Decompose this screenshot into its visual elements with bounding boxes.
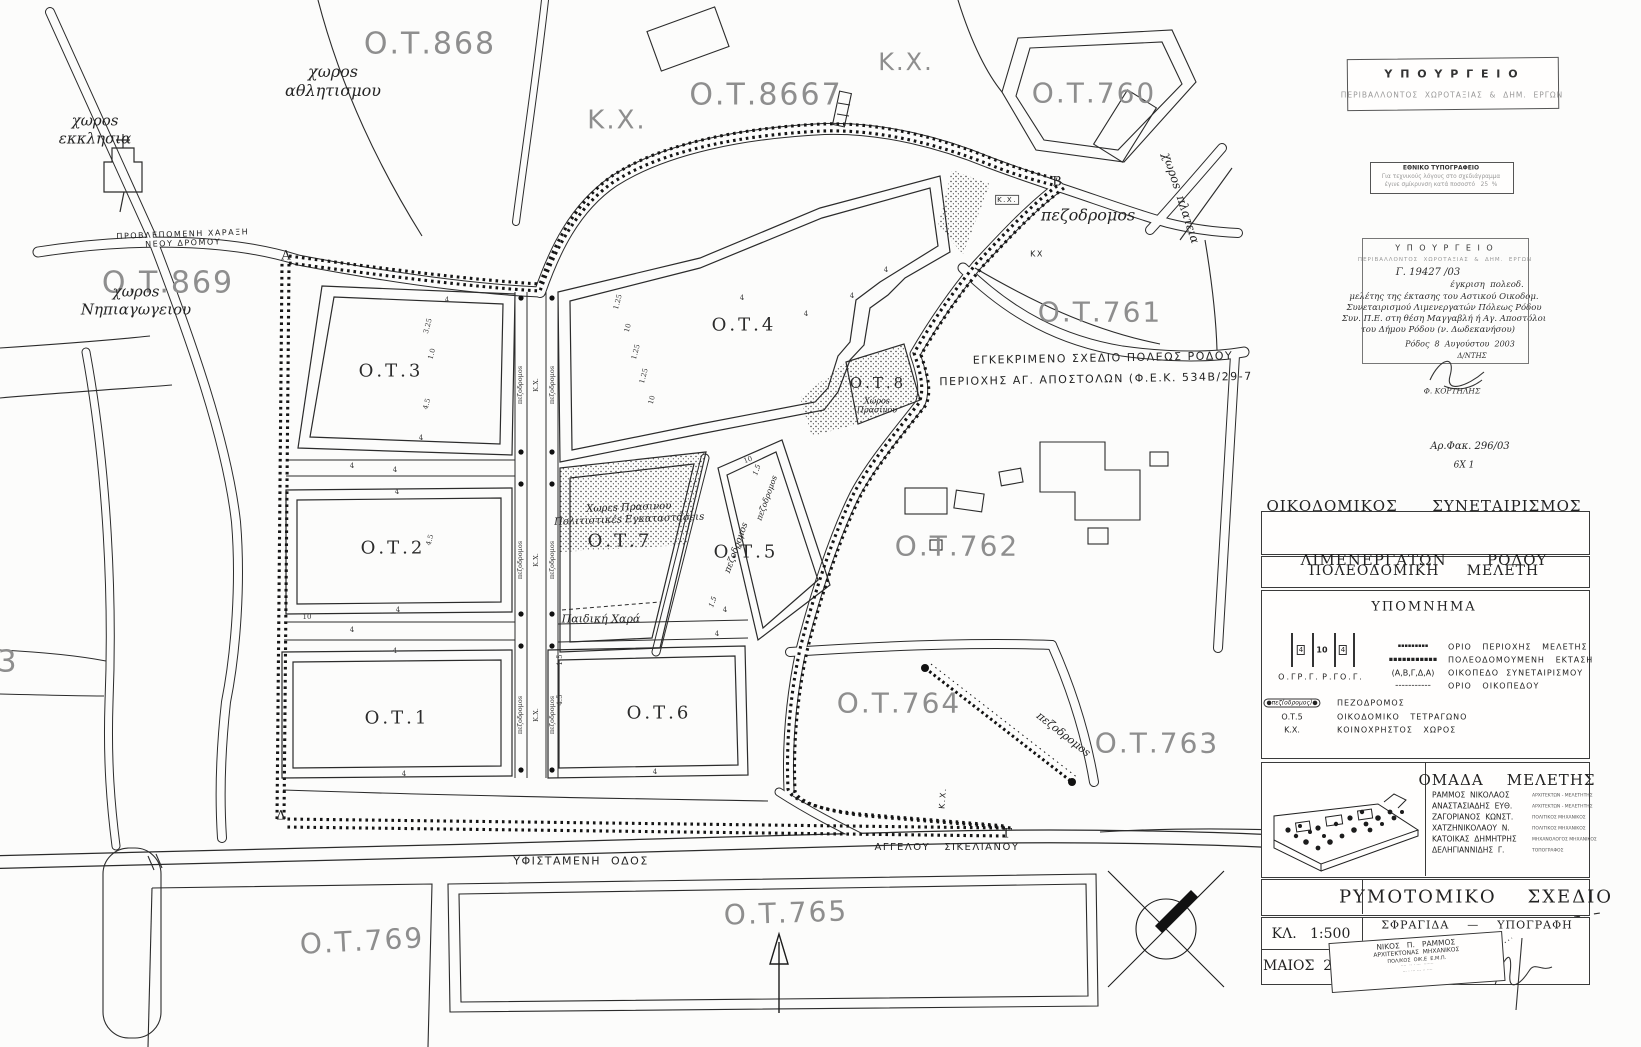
dimension-value: 4	[350, 462, 354, 470]
approval-stamp-box	[1362, 238, 1529, 364]
ot-5: Ο.Τ.5	[714, 541, 779, 562]
dimension-value: 4	[396, 606, 400, 614]
section-number-1: 4	[1297, 645, 1305, 655]
ministry-stamp-line2: ΠΕΡΙΒΑΛΛΟΝΤΟΣ ΧΩΡΟΤΑΞΙΑΣ & ΔΗΜ. ΕΡΓΩΝ	[1341, 91, 1564, 100]
team-member-name: ΖΑΓΟΡΙΑΝΟΣ ΚΩΝΣΤ.	[1432, 814, 1513, 823]
team-member-name: ΡΑΜΜΟΣ ΝΙΚΟΛΑΟΣ	[1432, 792, 1510, 801]
kx-top-left: Κ.Χ.	[587, 106, 646, 137]
vertex-g: Γ	[1003, 826, 1012, 841]
ot-761: Ο.Τ.761	[1038, 295, 1162, 328]
ministry-stamp-line1: Υ Π Ο Υ Ρ Γ Ε Ι Ο	[1384, 68, 1519, 81]
legend-item-3-symbol: -----------	[1395, 681, 1431, 692]
kx-top-right: Κ.Χ.	[878, 48, 933, 76]
dimension-value: 1.5	[556, 654, 564, 665]
section-number-3: 4	[1339, 645, 1347, 655]
ot-760: Ο.Τ.760	[1032, 76, 1156, 109]
legend-item2-0-symbol: ●πεζ(οδρομος)●	[1263, 698, 1320, 707]
north-arrow-icon	[770, 934, 788, 1013]
legend-item2-1-symbol: Ο.Τ.5	[1281, 712, 1302, 721]
file-number: Αρ.Φακ. 296/03	[1430, 441, 1509, 453]
legend-item-2-label: ΟΙΚΟΠΕΔΟ ΣΥΝΕΤΑΙΡΙΣΜΟΥ	[1448, 668, 1583, 677]
dimension-value: 4	[715, 630, 719, 638]
approval-stamp-line-10: Φ. ΚΟΡΤΗΛΗΣ	[1424, 388, 1481, 397]
ot-867: Ο.Τ.8667	[689, 77, 842, 112]
scanned-plan-page: { "map": { "outer_labels": [ {"id":"ot-8…	[0, 0, 1641, 1047]
kx-near-b1: Κ.Χ.	[995, 195, 1019, 205]
team-member-name: ΧΑΤΖΗΝΙΚΟΛΑΟΥ Ν.	[1432, 825, 1510, 834]
strip-label: πεζοδρομοs	[517, 366, 525, 404]
site-model-sketch	[1266, 772, 1426, 872]
ot-4: Ο.Τ.4	[712, 314, 777, 335]
legend-item2-1-label: ΟΙΚΟΔΟΜΙΚΟ ΤΕΤΡΑΓΩΝΟ	[1337, 712, 1467, 721]
section-bar-2	[1312, 633, 1314, 667]
area-sports: χωροs αθλητισμου	[285, 63, 381, 101]
legend-item-0-label: ΟΡΙΟ ΠΕΡΙΟΧΗΣ ΜΕΛΕΤΗΣ	[1448, 642, 1588, 651]
legend-item2-2-symbol: Κ.Χ.	[1284, 725, 1300, 734]
dimension-value: 4	[350, 626, 354, 634]
printing-stamp-body2: έγινε σμίκρυνση κατά ποσοστό 25 %	[1385, 182, 1497, 188]
section-label-left: Ο.ΓΡ.Γ.	[1278, 673, 1320, 682]
ot-6: Ο.Τ.6	[627, 702, 692, 723]
ot-764: Ο.Τ.764	[837, 686, 961, 719]
ot7-playground: Παιδική Χαρά	[562, 614, 641, 627]
dimension-value: 10	[303, 613, 312, 621]
dimension-value: 4	[445, 296, 449, 304]
strip-label: πεζοδρομοs	[549, 541, 557, 579]
ot-868: Ο.Τ.868	[364, 26, 496, 61]
team-member-role: ΑΡΧΙΤΕΚΤΩΝ - ΜΕΛΕΤΗΤΗΣ	[1532, 793, 1593, 798]
dimension-value: 4	[419, 434, 423, 442]
legend-item-1-symbol: ▪▪▪▪▪▪▪▪▪▪▪	[1389, 656, 1437, 664]
printing-stamp-title: ΕΘΝΙΚΟ ΤΥΠΟΓΡΑΦΕΙΟ	[1403, 165, 1479, 172]
study-title: ΠΟΛΕΟΔΟΜΙΚΗ ΜΕΛΕΤΗ	[1309, 563, 1539, 579]
ot-left-3: 3	[0, 644, 19, 679]
legend-title: ΥΠΟΜΝΗΜΑ	[1371, 600, 1476, 615]
team-member-role: ΠΟΛΙΤΙΚΟΣ ΜΗΧΑΝΙΚΟΣ	[1532, 815, 1586, 820]
dimension-value: 4	[393, 647, 397, 655]
team-member-role: ΤΟΠΟΓΡΑΦΟΣ	[1532, 848, 1563, 853]
team-member-name: ΑΝΑΣΤΑΣΙΑΔΗΣ ΕΥΘ.	[1432, 803, 1512, 812]
dimension-value: 4.5	[556, 694, 564, 705]
vertex-d: Δ	[276, 808, 285, 823]
strip-label: Κ.Χ.	[533, 378, 541, 392]
ot-762: Ο.Τ.762	[895, 529, 1019, 562]
street-yfistameni: ΥΦΙΣΤΑΜΕΝΗ ΟΔΟΣ	[513, 856, 649, 869]
dimension-value: 4	[804, 310, 808, 318]
legend-item2-0-label: ΠΕΖΟΔΡΟΜΟΣ	[1337, 698, 1405, 707]
printing-stamp-body1: Για τεχνικούς λόγους στο σχεδιάγραμμα	[1382, 174, 1500, 180]
area-church: χωροs εκκλησια	[59, 112, 131, 147]
ot-7: Ο.Τ.7	[588, 530, 653, 551]
dimension-value: 4	[393, 466, 397, 474]
section-bar-1	[1291, 633, 1293, 667]
dimension-value: 4	[723, 606, 727, 614]
strip-label: Κ.Χ.	[533, 708, 541, 722]
street-sikelianou: ΑΓΓΕΛΟΥ ΣΙΚΕΛΙΑΝΟΥ	[875, 842, 1020, 854]
team-member-role: ΑΡΧΙΤΕΚΤΩΝ - ΜΕΛΕΤΗΤΗΣ	[1532, 804, 1593, 809]
plan-title: ΡΥΜΟΤΟΜΙΚΟ ΣΧΕΔΙΟ	[1339, 887, 1613, 908]
section-label-right: Ρ.ΓΟ.Γ.	[1322, 673, 1364, 682]
team-member-name: ΔΕΛΗΓΙΑΝΝΙΔΗΣ Γ.	[1432, 847, 1504, 856]
ot-3: Ο.Τ.3	[359, 360, 424, 381]
ot-763: Ο.Τ.763	[1095, 726, 1219, 759]
strip-label: πεζοδρομοs	[549, 366, 557, 404]
section-bar-3	[1334, 633, 1336, 667]
team-member-name: ΚΑΤΟΙΚΑΣ ΔΗΜΗΤΡΗΣ	[1432, 836, 1517, 845]
dimension-value: 4	[395, 488, 399, 496]
area-kindergarten: χωροs Νηπιαγωγειου	[81, 283, 191, 318]
vertex-b: Β	[1052, 174, 1062, 189]
dimension-value: 4	[884, 266, 888, 274]
ministry-stamp-box	[1347, 57, 1560, 111]
team-member-role: ΜΗΧΑΝΟΛΟΓΟΣ ΜΗΧΑΝΙΚΟΣ	[1532, 837, 1597, 842]
team-title: ΟΜΑΔΑ ΜΕΛΕΤΗΣ	[1418, 771, 1595, 789]
scale-value: ΚΛ. 1:500	[1272, 926, 1351, 942]
ot-1: Ο.Τ.1	[365, 707, 430, 728]
strip-label: Κ.Χ.	[533, 553, 541, 567]
strip-label: πεζοδρομοs	[517, 696, 525, 734]
section-bar-4	[1353, 633, 1355, 667]
coop-title-line1: ΟΙΚΟΔΟΜΙΚΟΣ ΣΥΝΕΤΑΙΡΙΣΜΟΣ	[1266, 497, 1581, 515]
ot-769: Ο.Τ.769	[299, 921, 425, 960]
dimension-value: 4	[740, 294, 744, 302]
ot-2: Ο.Τ.2	[361, 537, 426, 558]
pedestrian-ne: πεζοδρομοs	[1041, 207, 1135, 226]
vertex-a: Α	[281, 248, 290, 263]
strip-label: πεζοδρομοs	[517, 541, 525, 579]
legend-item-1-label: ΠΟΛΕΟΔΟΜΟΥΜΕΝΗ ΕΚΤΑΣΗ	[1448, 655, 1593, 664]
ot8-use: Χώροs Πρασίνου	[857, 397, 897, 416]
stamp-signature-header: ΣΦΡΑΓΙΔΑ — ΥΠΟΓΡΑΦΗ	[1381, 919, 1572, 932]
legend-item-0-symbol: ▪▪▪▪▪▪▪▪▪	[1398, 644, 1429, 650]
dimension-value: 4	[402, 770, 406, 778]
legend-item-3-label: ΟΡΙΟ ΟΙΚΟΠΕΔΟΥ	[1448, 681, 1539, 690]
legend-item2-2-label: ΚΟΙΝΟΧΡΗΣΤΟΣ ΧΩΡΟΣ	[1337, 725, 1456, 734]
section-number-2: 10	[1316, 646, 1327, 655]
dimension-value: 4	[850, 292, 854, 300]
kx-bottom: Κ.Χ.	[937, 787, 948, 810]
kx-near-b2: ΚΧ	[1030, 249, 1044, 258]
ot-8: Ο.Τ.8	[850, 375, 906, 393]
dimension-value: 4	[653, 768, 657, 776]
team-member-role: ΠΟΛΙΤΙΚΟΣ ΜΗΧΑΝΙΚΟΣ	[1532, 826, 1586, 831]
legend-item-2-symbol: (Α,Β,Γ,Δ,Α)	[1392, 668, 1435, 677]
compass-icon	[1108, 871, 1224, 987]
ot-765: Ο.Τ.765	[723, 894, 848, 931]
